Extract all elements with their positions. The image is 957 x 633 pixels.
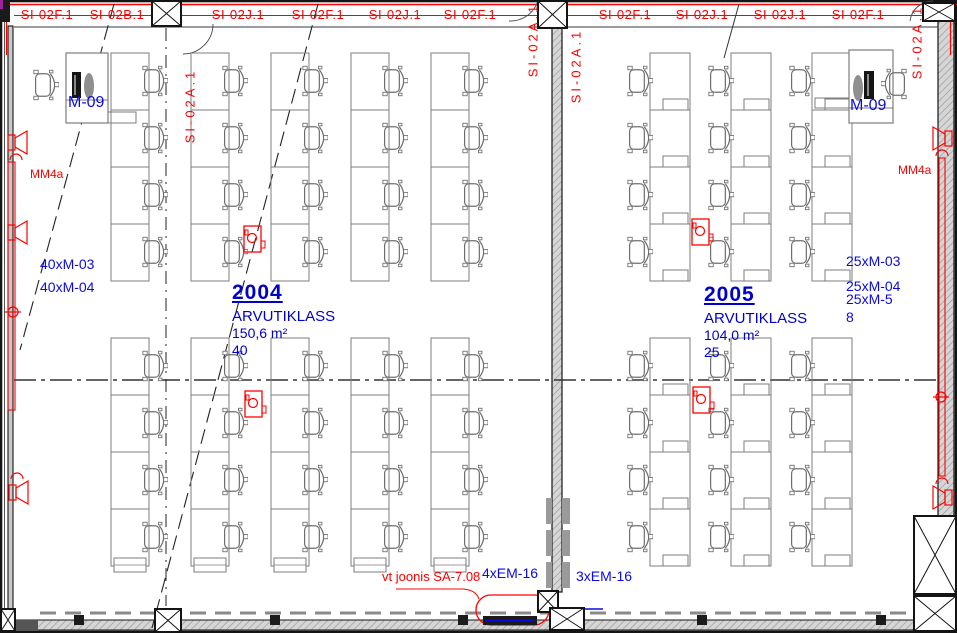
column-x-box <box>152 1 181 26</box>
projector-symbol <box>692 219 713 245</box>
column-x-box <box>923 3 955 21</box>
column-x-box <box>914 516 956 594</box>
reference-lines <box>14 1 938 628</box>
teacher-station-left <box>34 53 136 123</box>
projector-symbol <box>693 387 714 413</box>
projector-symbol <box>245 391 266 417</box>
room-2005-desks <box>628 53 852 566</box>
floor-plan-drawing: 2004 ARVUTIKLASS 150,6 m² 40 2005 ARVUTI… <box>0 0 957 633</box>
teacher-station-right <box>815 50 906 123</box>
column-x-box <box>538 1 567 28</box>
room-2004-desks <box>111 53 488 572</box>
column-x-box <box>914 596 956 631</box>
column-x-box <box>155 609 181 632</box>
column-x-box <box>1 609 15 631</box>
projector-symbol <box>244 226 265 252</box>
floor-plan-svg <box>0 0 957 633</box>
column-x-box <box>550 608 584 630</box>
